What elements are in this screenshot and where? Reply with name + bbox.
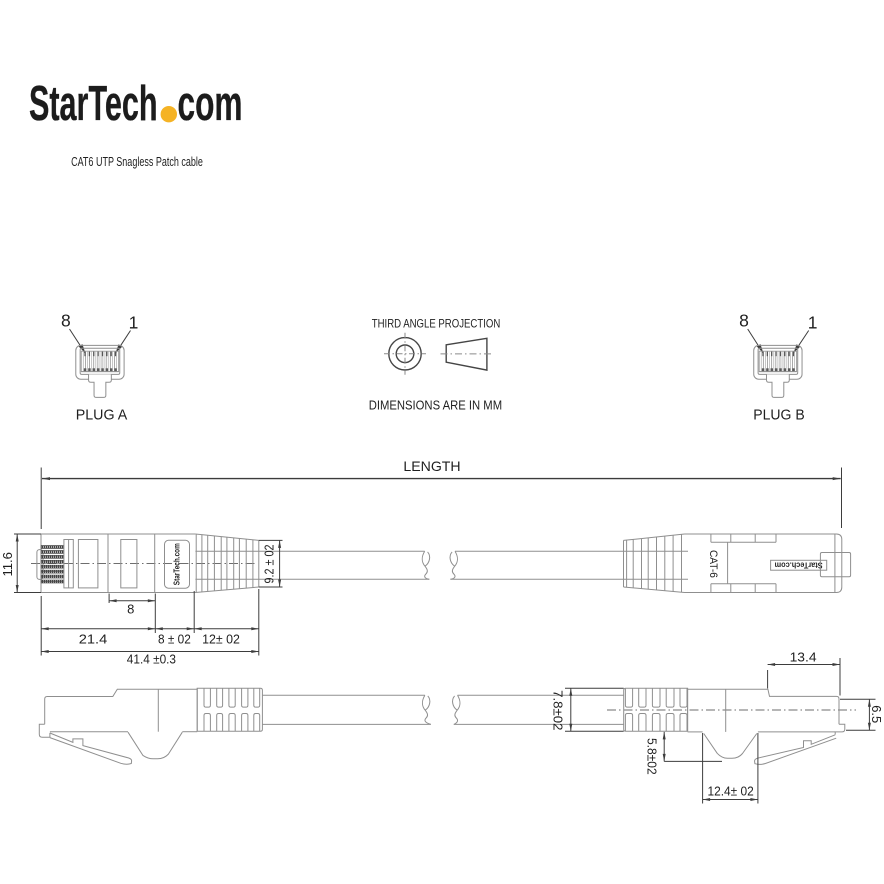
svg-text:8: 8 <box>61 311 71 331</box>
svg-text:21.4: 21.4 <box>79 632 108 647</box>
svg-text:CAT-6: CAT-6 <box>707 550 719 578</box>
svg-text:13.4: 13.4 <box>790 650 817 665</box>
svg-text:1: 1 <box>129 313 139 333</box>
svg-text:41.4 ±0.3: 41.4 ±0.3 <box>127 652 176 667</box>
svg-text:THIRD ANGLE PROJECTION: THIRD ANGLE PROJECTION <box>372 316 501 330</box>
svg-text:9.2 ± 02: 9.2 ± 02 <box>261 545 276 584</box>
svg-text:PLUG B: PLUG B <box>753 408 805 424</box>
svg-text:PLUG A: PLUG A <box>76 408 128 424</box>
svg-text:LENGTH: LENGTH <box>403 458 460 474</box>
svg-text:StarTech: StarTech <box>29 77 158 131</box>
svg-text:StarTech.com: StarTech.com <box>774 560 822 570</box>
svg-text:8 ± 02: 8 ± 02 <box>158 632 191 647</box>
svg-text:StarTech.com: StarTech.com <box>171 543 181 585</box>
svg-text:12± 02: 12± 02 <box>202 632 240 647</box>
svg-text:CAT6 UTP Snagless Patch cable: CAT6 UTP Snagless Patch cable <box>71 155 203 169</box>
svg-text:5.8±02: 5.8±02 <box>645 738 660 775</box>
svg-text:1: 1 <box>808 313 818 333</box>
svg-text:11.6: 11.6 <box>0 552 15 577</box>
svg-text:com: com <box>178 77 243 131</box>
svg-text:8: 8 <box>127 602 134 617</box>
svg-text:6.5: 6.5 <box>869 705 884 723</box>
svg-text:DIMENSIONS ARE IN MM: DIMENSIONS ARE IN MM <box>369 399 502 413</box>
svg-text:7.8±02: 7.8±02 <box>550 690 565 730</box>
svg-text:8: 8 <box>739 311 749 331</box>
svg-text:12.4± 02: 12.4± 02 <box>707 784 753 799</box>
